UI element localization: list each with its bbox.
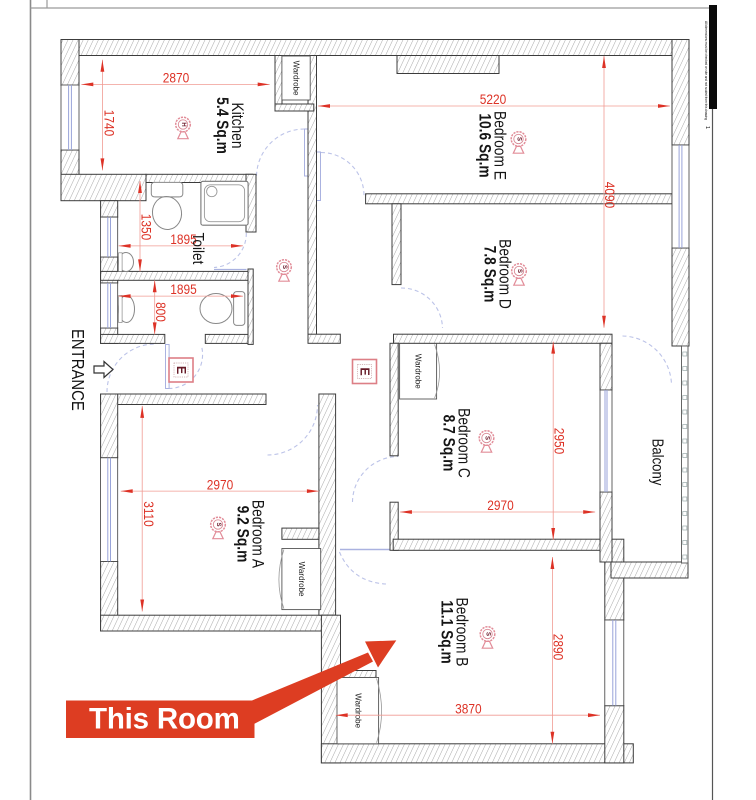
svg-text:This Room: This Room: [89, 703, 240, 736]
svg-text:3870: 3870: [455, 701, 481, 717]
svg-text:S: S: [281, 265, 287, 269]
svg-text:1740: 1740: [101, 110, 117, 136]
svg-text:Wardrobe: Wardrobe: [414, 354, 423, 389]
svg-text:2970: 2970: [207, 477, 233, 493]
svg-text:8.7 Sq.m: 8.7 Sq.m: [439, 415, 458, 472]
svg-text:11.1 Sq.m: 11.1 Sq.m: [437, 600, 456, 664]
svg-text:S: S: [484, 436, 490, 440]
svg-text:2870: 2870: [163, 70, 189, 86]
svg-text:S: S: [485, 632, 491, 636]
svg-text:E: E: [174, 366, 188, 374]
svg-text:800: 800: [153, 302, 169, 322]
svg-text:1350: 1350: [138, 214, 154, 240]
svg-text:Wardrobe: Wardrobe: [292, 61, 301, 96]
svg-text:2890: 2890: [550, 634, 566, 660]
svg-text:1895: 1895: [170, 281, 196, 297]
svg-text:4090: 4090: [602, 182, 618, 208]
svg-text:2950: 2950: [551, 428, 567, 454]
svg-text:3110: 3110: [141, 501, 157, 527]
svg-text:ENTRANCE: ENTRANCE: [68, 329, 87, 411]
svg-text:5220: 5220: [480, 91, 506, 107]
svg-text:Wardrobe: Wardrobe: [297, 562, 306, 597]
svg-text:7.8 Sq.m: 7.8 Sq.m: [480, 246, 499, 303]
svg-text:S: S: [215, 522, 221, 526]
svg-text:10.6 Sq.m: 10.6 Sq.m: [475, 113, 494, 177]
svg-text:5.4 Sq.m: 5.4 Sq.m: [213, 97, 232, 154]
svg-text:9.2 Sq.m: 9.2 Sq.m: [233, 506, 252, 563]
svg-text:E: E: [358, 367, 372, 375]
svg-text:1: 1: [704, 126, 710, 129]
svg-text:S: S: [516, 269, 522, 273]
svg-text:2970: 2970: [487, 497, 513, 513]
svg-text:Toilet: Toilet: [189, 233, 206, 266]
svg-text:All dimensions must be checked: All dimensions must be checked on site a…: [704, 21, 708, 120]
svg-text:Balcony: Balcony: [648, 439, 665, 487]
svg-text:Wardrobe: Wardrobe: [353, 693, 362, 728]
svg-text:S: S: [516, 137, 522, 141]
svg-text:H: H: [180, 122, 186, 126]
